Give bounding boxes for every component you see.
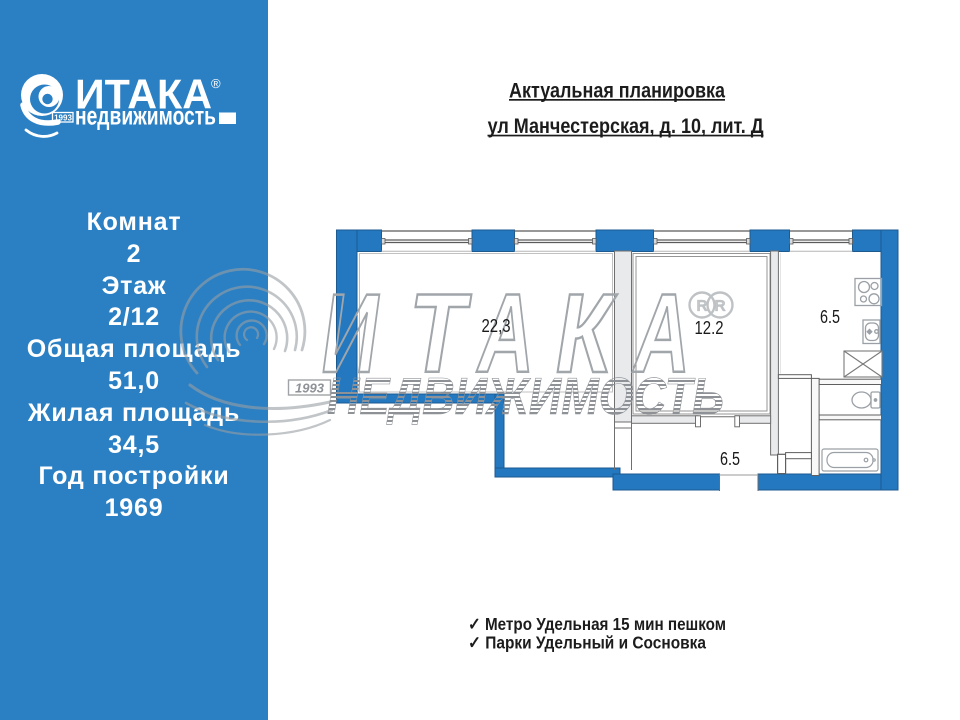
svg-text:НЕДВИЖИМОСТЬ: НЕДВИЖИМОСТЬ [327,368,724,426]
svg-text:6.5: 6.5 [820,307,840,327]
svg-text:12.2: 12.2 [695,318,724,338]
svg-text:R: R [697,298,708,315]
svg-text:✓ Метро Удельная 15 мин пешком: ✓ Метро Удельная 15 мин пешком [468,614,726,634]
svg-text:✓ Парки Удельный и Сосновка: ✓ Парки Удельный и Сосновка [468,633,706,653]
svg-text:R: R [715,298,726,315]
svg-text:Актуальная планировка: Актуальная планировка [509,79,726,103]
svg-text:22,3: 22,3 [482,316,511,336]
svg-text:6.5: 6.5 [720,449,740,469]
svg-text:1993: 1993 [295,381,325,396]
svg-text:ул Манчестерская, д. 10, лит.: ул Манчестерская, д. 10, лит. Д [488,114,764,138]
